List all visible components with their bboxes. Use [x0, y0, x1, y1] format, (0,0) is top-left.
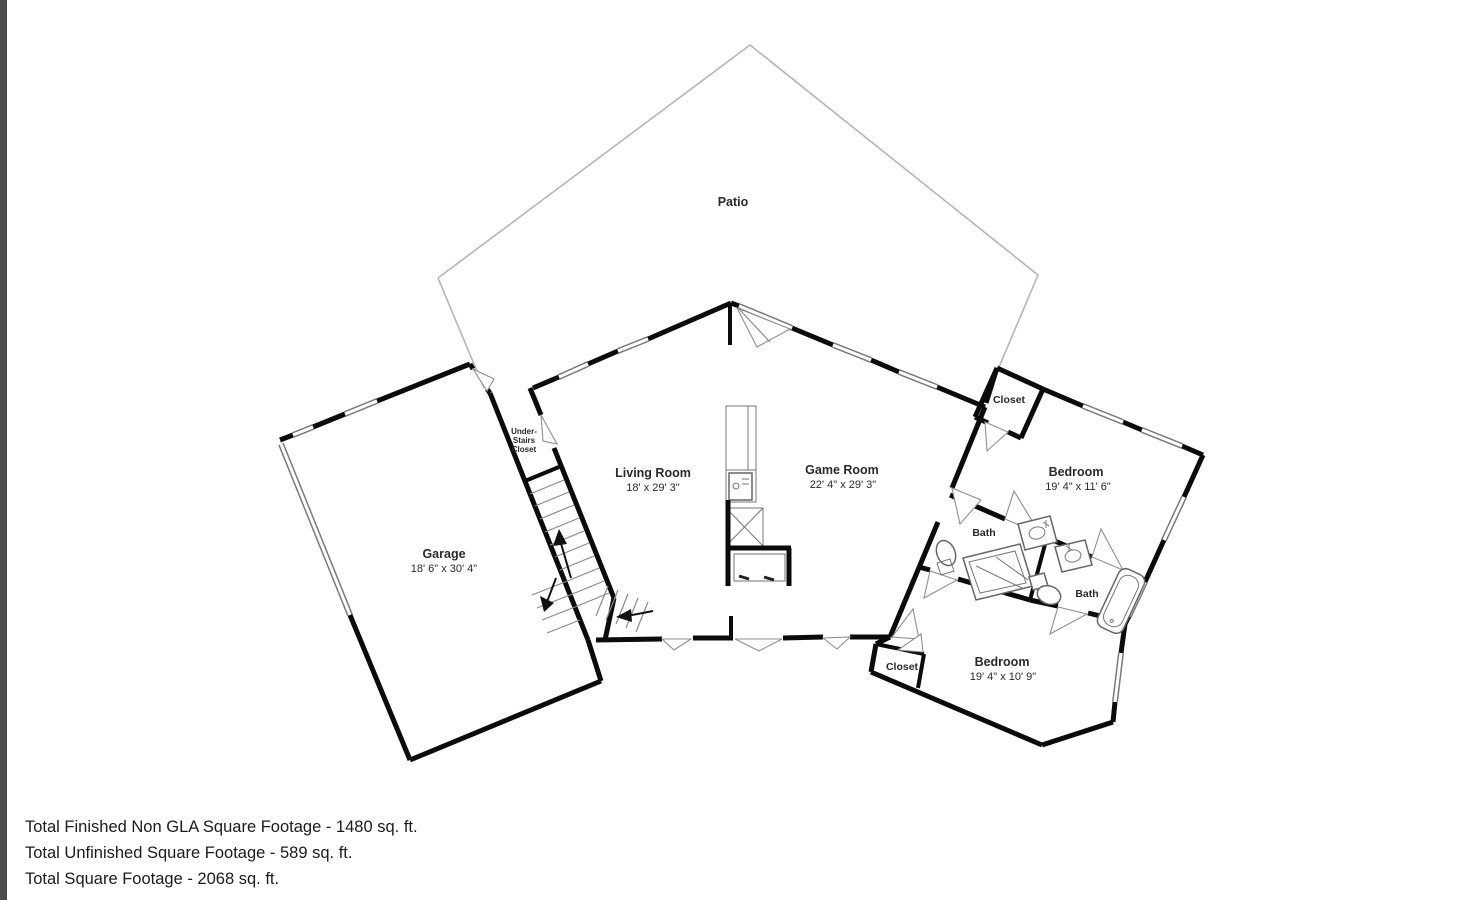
upper-closet-door-swing	[985, 422, 1008, 451]
window	[1142, 430, 1182, 446]
floorplan-drawing: Patio Living Room 18' x 29' 3" Game Room…	[0, 0, 1476, 900]
window	[833, 345, 871, 360]
staircase	[530, 480, 653, 633]
upper-bedroom-dims: 19' 4" x 11' 6"	[1045, 481, 1111, 493]
living-room-label: Living Room	[615, 466, 691, 480]
square-footage-summary: Total Finished Non GLA Square Footage - …	[25, 814, 418, 892]
garage-label: Garage	[422, 547, 465, 561]
lower-bedroom-label: Bedroom	[975, 655, 1030, 669]
understairs-closet-door-swing	[541, 415, 557, 444]
total-finished-non-gla-line: Total Finished Non GLA Square Footage - …	[25, 814, 418, 840]
upper-closet-label: Closet	[993, 394, 1026, 406]
front-door-swing	[662, 639, 691, 650]
windows	[293, 306, 1184, 702]
lower-bedroom-door-swing	[1050, 607, 1087, 634]
lower-bedroom-dims: 19' 4" x 10' 9"	[970, 671, 1037, 683]
window	[1164, 497, 1184, 540]
bedroom-wing-walls	[871, 368, 1203, 745]
utility-fixture	[729, 473, 752, 500]
garage-walls	[280, 364, 601, 760]
under-stairs-closet-label-line2: Stairs	[513, 436, 536, 445]
bath-fixtures	[933, 516, 1147, 636]
second-bath-label: Bath	[1075, 588, 1098, 600]
game-room-label: Game Room	[805, 463, 879, 477]
window	[899, 372, 937, 387]
game-room-dims: 22' 4" x 29' 3"	[810, 479, 877, 491]
under-stairs-closet-label-line3: Closet	[512, 445, 537, 454]
window	[345, 401, 377, 414]
bath-door-swing	[1092, 529, 1123, 570]
total-square-footage-line: Total Square Footage - 2068 sq. ft.	[25, 866, 418, 892]
under-stairs-closet-label-line1: Under-	[511, 427, 537, 436]
fireplace-column	[726, 406, 791, 586]
entry-steps-arrowhead	[616, 609, 632, 622]
garage-dims: 18' 6" x 30' 4"	[411, 563, 478, 575]
main-bath-label: Bath	[972, 527, 995, 539]
patio-outline	[438, 45, 1038, 388]
stairs-up-arrowhead	[553, 529, 567, 546]
stairs-down-arrowhead	[540, 596, 554, 612]
floorplan-page: Patio Living Room 18' x 29' 3" Game Room…	[0, 0, 1476, 900]
window	[618, 339, 648, 351]
stairs-down-arrow	[547, 578, 556, 602]
window	[1115, 653, 1121, 702]
window	[1083, 406, 1123, 422]
window	[293, 427, 313, 435]
window	[559, 364, 588, 377]
patio-label: Patio	[718, 195, 749, 209]
center-section-walls	[530, 303, 985, 640]
total-unfinished-line: Total Unfinished Square Footage - 589 sq…	[25, 840, 418, 866]
lower-closet-label: Closet	[886, 661, 919, 673]
upper-bedroom-label: Bedroom	[1049, 465, 1104, 479]
front-door-swing	[735, 639, 782, 651]
living-room-dims: 18' x 29' 3"	[626, 482, 679, 494]
front-door-swing	[823, 637, 850, 649]
